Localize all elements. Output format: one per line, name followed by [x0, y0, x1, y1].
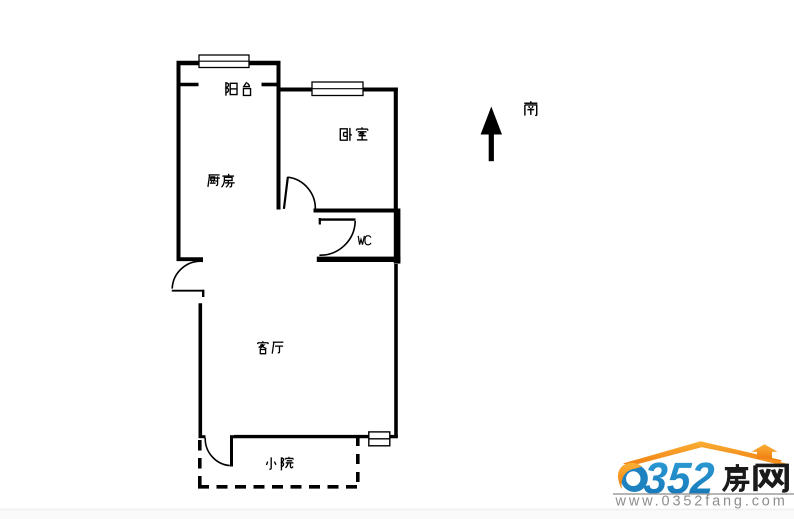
svg-text:www.0352fang.com: www.0352fang.com — [615, 493, 788, 509]
